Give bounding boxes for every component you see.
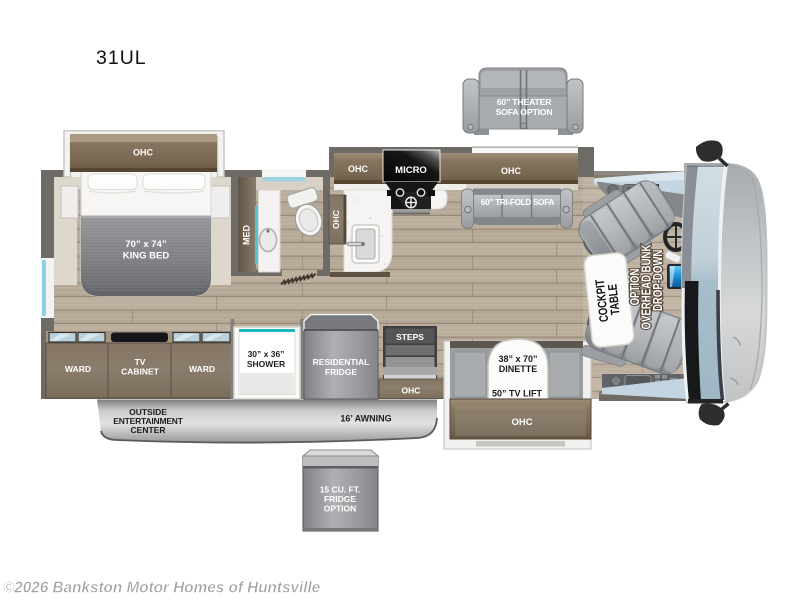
svg-text:SHOWER: SHOWER bbox=[247, 359, 285, 369]
svg-text:©2026 Bankston Motor Homes of: ©2026 Bankston Motor Homes of Huntsville bbox=[3, 580, 321, 597]
svg-text:MED: MED bbox=[242, 225, 252, 246]
svg-text:OHC: OHC bbox=[348, 164, 369, 174]
svg-text:70” x 74”: 70” x 74” bbox=[125, 239, 166, 250]
svg-text:TV: TV bbox=[135, 357, 146, 367]
svg-text:CABINET: CABINET bbox=[121, 367, 160, 377]
svg-text:15 CU. FT.: 15 CU. FT. bbox=[320, 485, 361, 495]
svg-text:SOFA OPTION: SOFA OPTION bbox=[496, 107, 553, 117]
svg-text:OHC: OHC bbox=[402, 386, 421, 396]
svg-text:FRIDGE: FRIDGE bbox=[324, 494, 356, 504]
svg-text:RESIDENTIAL: RESIDENTIAL bbox=[313, 357, 370, 367]
svg-text:50” TV LIFT: 50” TV LIFT bbox=[492, 389, 543, 399]
svg-text:DROP-DOWN: DROP-DOWN bbox=[652, 250, 666, 311]
svg-text:CENTER: CENTER bbox=[131, 425, 166, 435]
svg-text:60” THEATER: 60” THEATER bbox=[497, 97, 553, 107]
svg-text:30” x 36”: 30” x 36” bbox=[248, 349, 285, 359]
svg-text:31UL: 31UL bbox=[96, 47, 147, 69]
svg-text:OHC: OHC bbox=[331, 210, 341, 229]
svg-text:FRIDGE: FRIDGE bbox=[325, 367, 357, 377]
svg-text:DINETTE: DINETTE bbox=[499, 364, 538, 374]
svg-text:WARD: WARD bbox=[189, 364, 215, 374]
svg-text:KING BED: KING BED bbox=[123, 251, 170, 262]
svg-text:38” x 70”: 38” x 70” bbox=[498, 354, 537, 364]
svg-text:STEPS: STEPS bbox=[396, 332, 424, 342]
svg-text:WARD: WARD bbox=[65, 364, 91, 374]
svg-text:OHC: OHC bbox=[501, 166, 522, 176]
svg-text:16’ AWNING: 16’ AWNING bbox=[340, 414, 391, 424]
svg-text:OPTION: OPTION bbox=[324, 504, 357, 514]
svg-text:OHC: OHC bbox=[511, 417, 532, 428]
svg-text:OHC: OHC bbox=[133, 148, 154, 158]
svg-text:MICRO: MICRO bbox=[395, 165, 427, 176]
svg-text:60” TRI-FOLD SOFA: 60” TRI-FOLD SOFA bbox=[481, 198, 555, 207]
